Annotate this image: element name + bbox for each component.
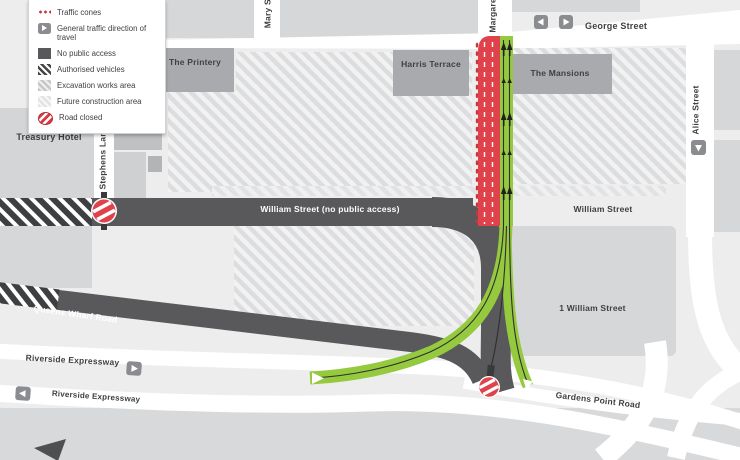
map-legend: Traffic cones General traffic direction … [28, 0, 166, 134]
excavation-works-icon [38, 80, 51, 91]
authorised-vehicles-zone-william [0, 198, 92, 226]
city-block [512, 0, 640, 12]
riverside-west-arrow-icon [15, 386, 31, 401]
open-lanes-green [500, 36, 513, 226]
authorised-vehicles-icon [38, 64, 51, 75]
the-printery-building [156, 48, 234, 92]
george-street-east-arrow-icon [559, 15, 573, 29]
city-block [714, 50, 740, 130]
city-block [714, 140, 740, 232]
alice-street-road [686, 42, 714, 237]
harris-terrace-building [393, 50, 469, 96]
city-block [114, 152, 146, 198]
mary-street-road [254, 0, 280, 42]
legend-item-road-closed: Road closed [38, 112, 156, 125]
city-block [148, 156, 162, 172]
future-construction-strip [212, 186, 508, 196]
city-block [280, 0, 478, 38]
riverside-east-arrow-icon [126, 361, 142, 376]
road-closed-red-section [478, 36, 500, 226]
traffic-cones-icon [38, 10, 51, 14]
future-construction-strip [508, 186, 666, 196]
future-construction-icon [38, 96, 51, 107]
the-mansions-building [508, 54, 612, 94]
legend-item-traffic-cones: Traffic cones [38, 7, 156, 18]
alice-street-down-arrow-icon [691, 140, 706, 155]
legend-item-no-access: No public access [38, 48, 156, 59]
legend-items: Traffic cones General traffic direction … [38, 7, 156, 125]
no-public-access-icon [38, 48, 51, 59]
excavation-area-west [168, 92, 472, 192]
direction-arrow-icon [38, 23, 51, 34]
excavation-area-south [234, 226, 474, 326]
legend-item-authorised: Authorised vehicles [38, 64, 156, 75]
city-block [0, 226, 92, 288]
george-street-west-arrow-icon [534, 15, 548, 29]
legend-item-excavation: Excavation works area [38, 80, 156, 91]
margaret-street-road [478, 0, 512, 38]
one-william-street-building [506, 226, 676, 356]
traffic-map: George Street The Printery Harris Terrac… [0, 0, 740, 460]
legend-item-direction: General traffic direction of travel [38, 23, 156, 43]
legend-item-future: Future construction area [38, 96, 156, 107]
road-closed-icon [38, 112, 53, 125]
city-block [160, 0, 254, 38]
